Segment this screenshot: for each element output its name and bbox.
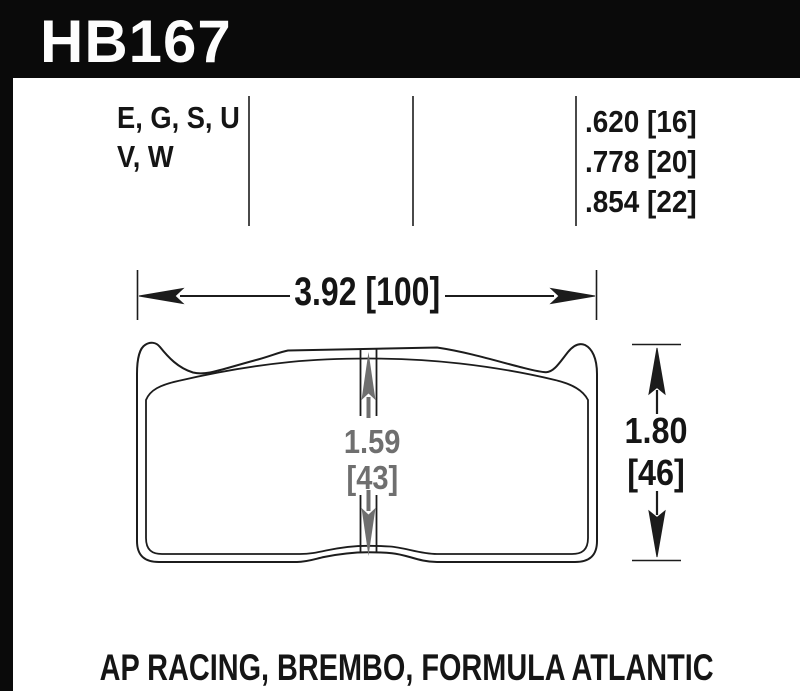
pad-thickness-option: .620 [16]: [585, 102, 697, 142]
overall-height-dimension-label: 1.80 [46]: [607, 410, 705, 494]
brake-pad-spec-sheet: HB167 E, G, S, U V, W .620 [16] .778 [20…: [0, 0, 800, 691]
compound-codes: E, G, S, U V, W: [117, 98, 240, 176]
applications-text: AP RACING, BREMBO, FORMULA ATLANTIC: [13, 648, 800, 688]
table-divider-2: [412, 96, 414, 226]
pad-thickness-list: .620 [16] .778 [20] .854 [22]: [585, 102, 697, 222]
table-divider-1: [248, 96, 250, 226]
arrow-down-icon: [362, 508, 376, 556]
arrow-up-icon: [649, 348, 665, 394]
pad-thickness-option: .778 [20]: [585, 142, 697, 182]
arrow-down-icon: [649, 511, 665, 557]
compound-codes-line2: V, W: [117, 137, 240, 176]
arrow-up-icon: [362, 352, 376, 400]
center-height-dimension-label: 1.59 [43]: [312, 424, 432, 496]
compound-codes-line1: E, G, S, U: [117, 98, 240, 137]
table-divider-3: [575, 96, 577, 226]
width-dimension-label: 3.92 [100]: [137, 272, 597, 312]
pad-thickness-option: .854 [22]: [585, 182, 697, 222]
left-black-strip: [0, 0, 13, 691]
part-number: HB167: [40, 12, 232, 72]
part-number-banner: HB167: [0, 0, 800, 78]
